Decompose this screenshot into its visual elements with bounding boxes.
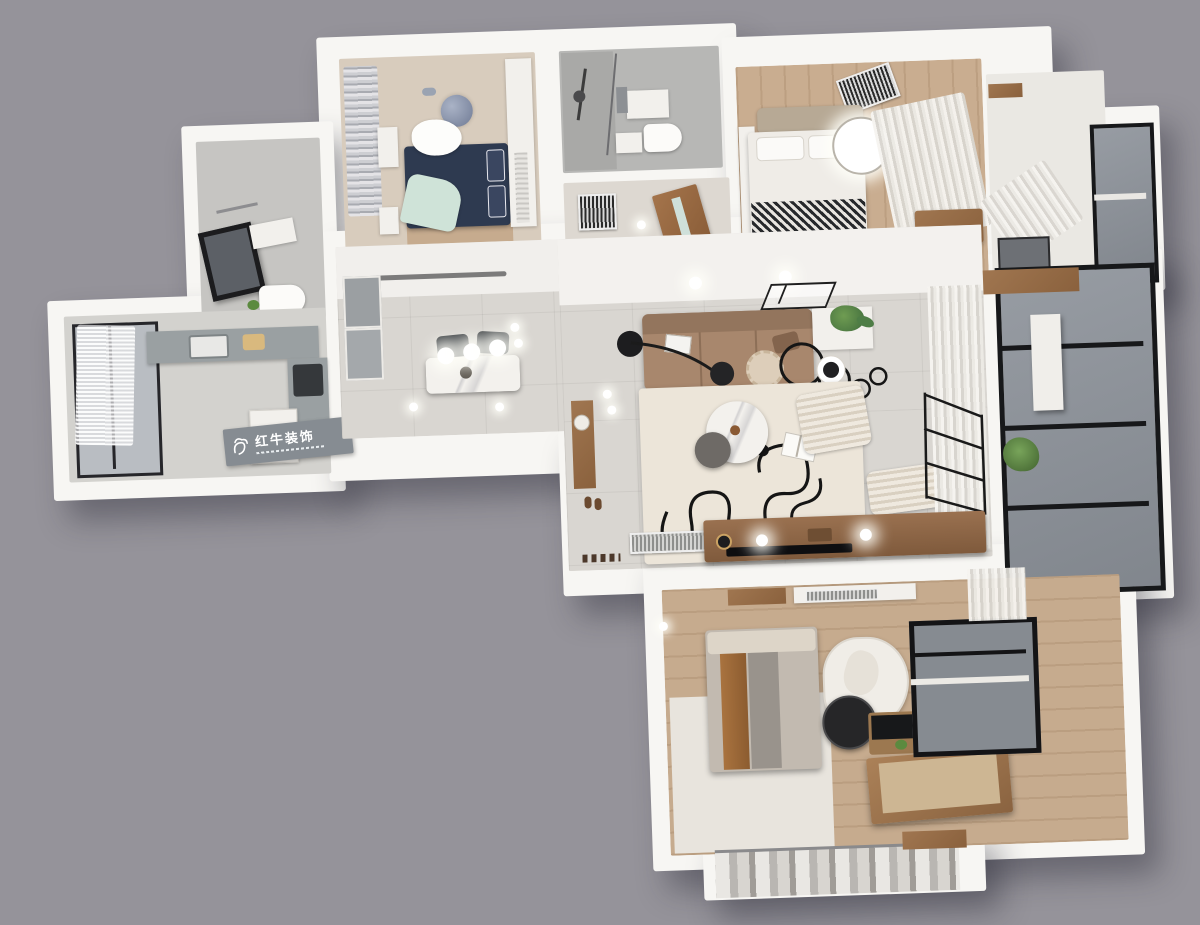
lounge-chair [795,384,872,455]
room-kids-bedroom [0,0,1185,21]
hall-vent [578,193,617,230]
bedroom-window [909,617,1042,757]
room-kitchen [0,0,1185,21]
room-walk-in-closet [0,0,1185,21]
entry-cabinet [571,400,596,489]
slippers [584,496,591,508]
render-canvas: { "title": "3D apartment floor plan rend… [0,0,1200,900]
zigzag-blanket [751,199,866,233]
room-balcony [0,0,1185,21]
far-right-glazing [1090,122,1160,284]
builtin-cabinet [344,328,384,381]
kitchen-sink [188,334,229,359]
wall-cabinet [728,588,787,606]
toilet [643,123,682,152]
room-guest-bathroom [0,0,1185,21]
room-hallway [0,0,1185,21]
ceiling-line-art [760,282,837,311]
cooktop [293,364,324,397]
kids-pillow [487,185,506,218]
bed-brown-stripe [720,653,750,770]
balcony-shelf [983,267,1080,294]
white-board [1030,314,1063,411]
cutting-board [242,334,265,351]
corridor-shelf [988,83,1022,98]
kitchen-sheer-curtain [75,325,135,446]
room-wardrobe-corridor [0,0,1185,21]
drying-rack [919,382,994,520]
room-master-bedroom-top [0,0,1185,21]
bed-gray-stripe [748,652,782,769]
console-books [808,528,832,542]
room-bedroom-bottom [0,0,1185,21]
kids-radiator [514,152,529,222]
shower-zone [561,51,617,171]
kids-curtain [343,66,382,217]
kids-dresser [377,127,398,168]
room-dining [0,0,1185,21]
cloud-decal [422,88,436,96]
bed-bottom-headboard [707,629,816,655]
bedroom-bottom-curtain [967,567,1027,621]
closet-wood-box [902,829,967,849]
wood-chest-top [879,753,1001,813]
bath-mirror-cabinet [616,87,628,113]
bed-pillow [756,136,805,162]
builtin-cabinet [342,276,382,329]
slippers [594,498,601,510]
shoe-row [582,553,620,562]
bath-vanity [626,89,669,118]
floorplan-render: 红牛装饰 [0,0,1200,921]
room-living [0,0,1185,21]
shower-tray [616,132,643,153]
kids-nightstand [379,207,399,235]
kids-pillow [486,149,505,182]
room-shower-bathroom [0,0,1185,21]
bull-logo-icon [229,434,251,458]
